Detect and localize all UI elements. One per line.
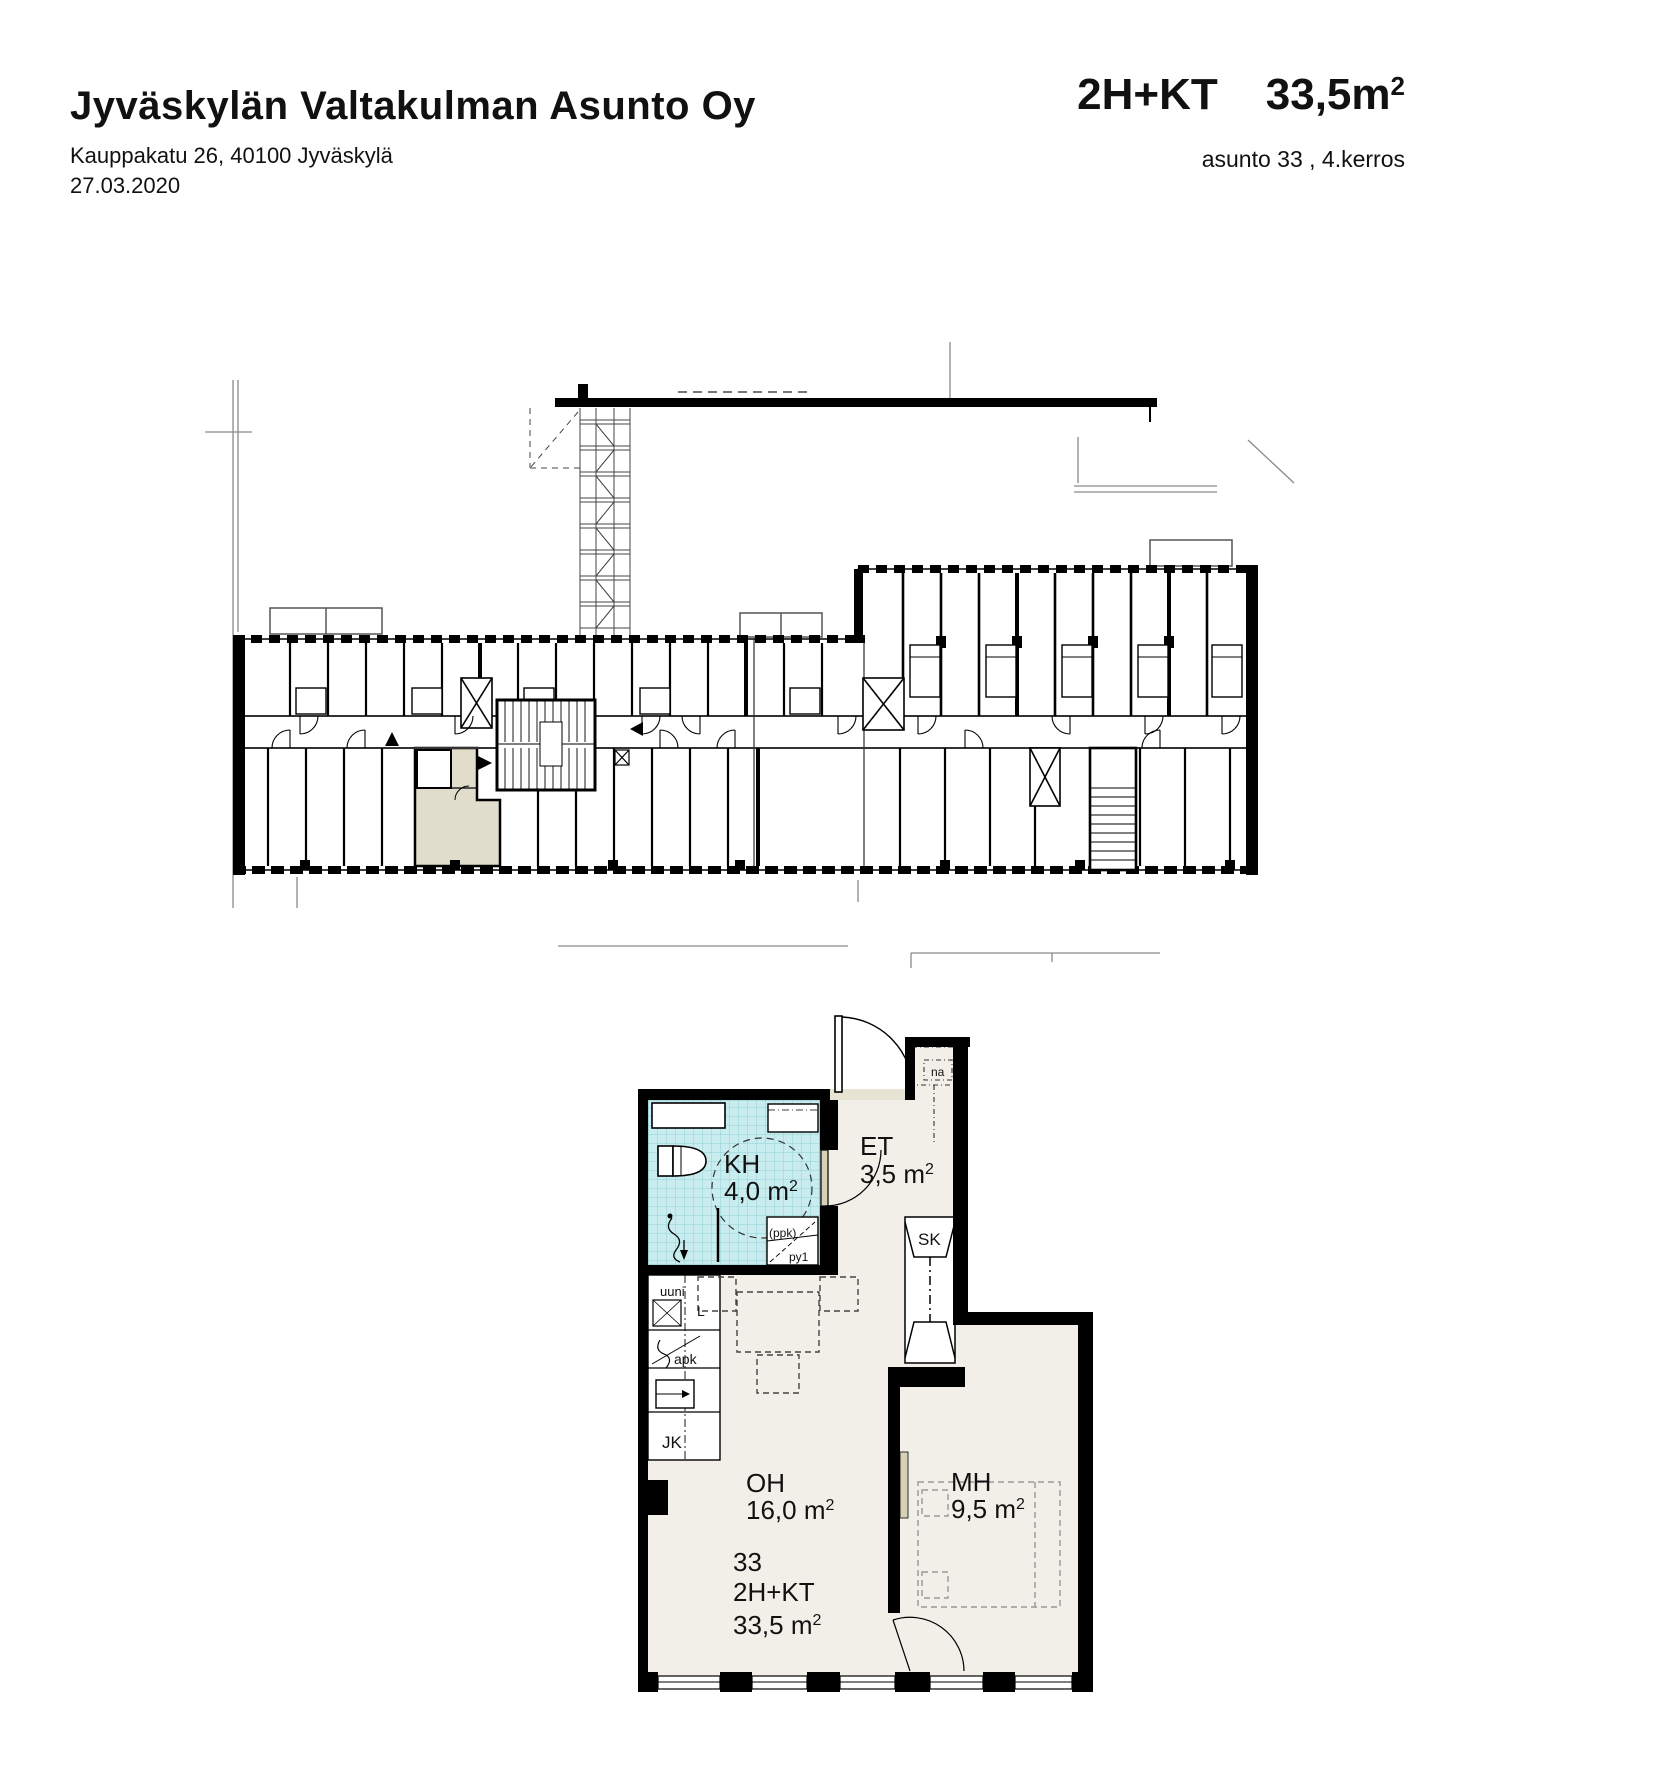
stairwell-central [497, 700, 595, 790]
site-top-wall [555, 384, 1157, 422]
entrance-door [830, 1016, 913, 1100]
label-jk: JK [662, 1433, 683, 1452]
apartment-detail-plan: KH 4,0 m2 ET 3,5 m2 OH 16,0 m2 MH 9,5 m2… [638, 1016, 1093, 1692]
svg-text:9,5 m2: 9,5 m2 [951, 1494, 1025, 1524]
label-oh: OH [746, 1468, 785, 1498]
elevator-small [615, 750, 629, 765]
label-et: ET [860, 1131, 893, 1161]
svg-text:33,5 m2: 33,5 m2 [733, 1610, 822, 1640]
kitchen-fixtures [648, 1275, 720, 1460]
floorplan-page: Jyväskylän Valtakulman Asunto Oy Kauppak… [0, 0, 1680, 1775]
stairwell-right [1090, 748, 1136, 870]
floorplan-graphics: KH 4,0 m2 ET 3,5 m2 OH 16,0 m2 MH 9,5 m2… [0, 0, 1680, 1775]
svg-text:16,0 m2: 16,0 m2 [746, 1495, 835, 1525]
elevator-right [1030, 748, 1060, 806]
label-liesi: L [697, 1303, 705, 1319]
elevator-central [461, 678, 492, 728]
label-kh: KH [724, 1149, 760, 1179]
elevator-mid [863, 678, 904, 730]
label-oh-area: 16,0 m [746, 1495, 826, 1525]
label-py1: py1 [789, 1250, 809, 1264]
label-na: na [931, 1065, 945, 1079]
label-ppk: (ppk) [769, 1226, 796, 1240]
label-mh: MH [951, 1467, 991, 1497]
label-apk: apk [674, 1351, 698, 1367]
label-sk: SK [918, 1230, 941, 1249]
svg-text:4,0 m2: 4,0 m2 [724, 1176, 798, 1206]
label-et-area: 3,5 m [860, 1159, 925, 1189]
label-kh-area: 4,0 m [724, 1176, 789, 1206]
building-floor-plan [233, 540, 1258, 875]
label-mh-area: 9,5 m [951, 1494, 1016, 1524]
svg-text:3,5 m2: 3,5 m2 [860, 1159, 934, 1189]
label-uuni: uuni [660, 1284, 685, 1299]
label-apt-type: 2H+KT [733, 1577, 815, 1607]
toilet-icon [658, 1146, 706, 1176]
scaffold-tower [530, 408, 630, 638]
label-apt-area: 33,5 m [733, 1610, 813, 1640]
label-apt-number: 33 [733, 1547, 762, 1577]
